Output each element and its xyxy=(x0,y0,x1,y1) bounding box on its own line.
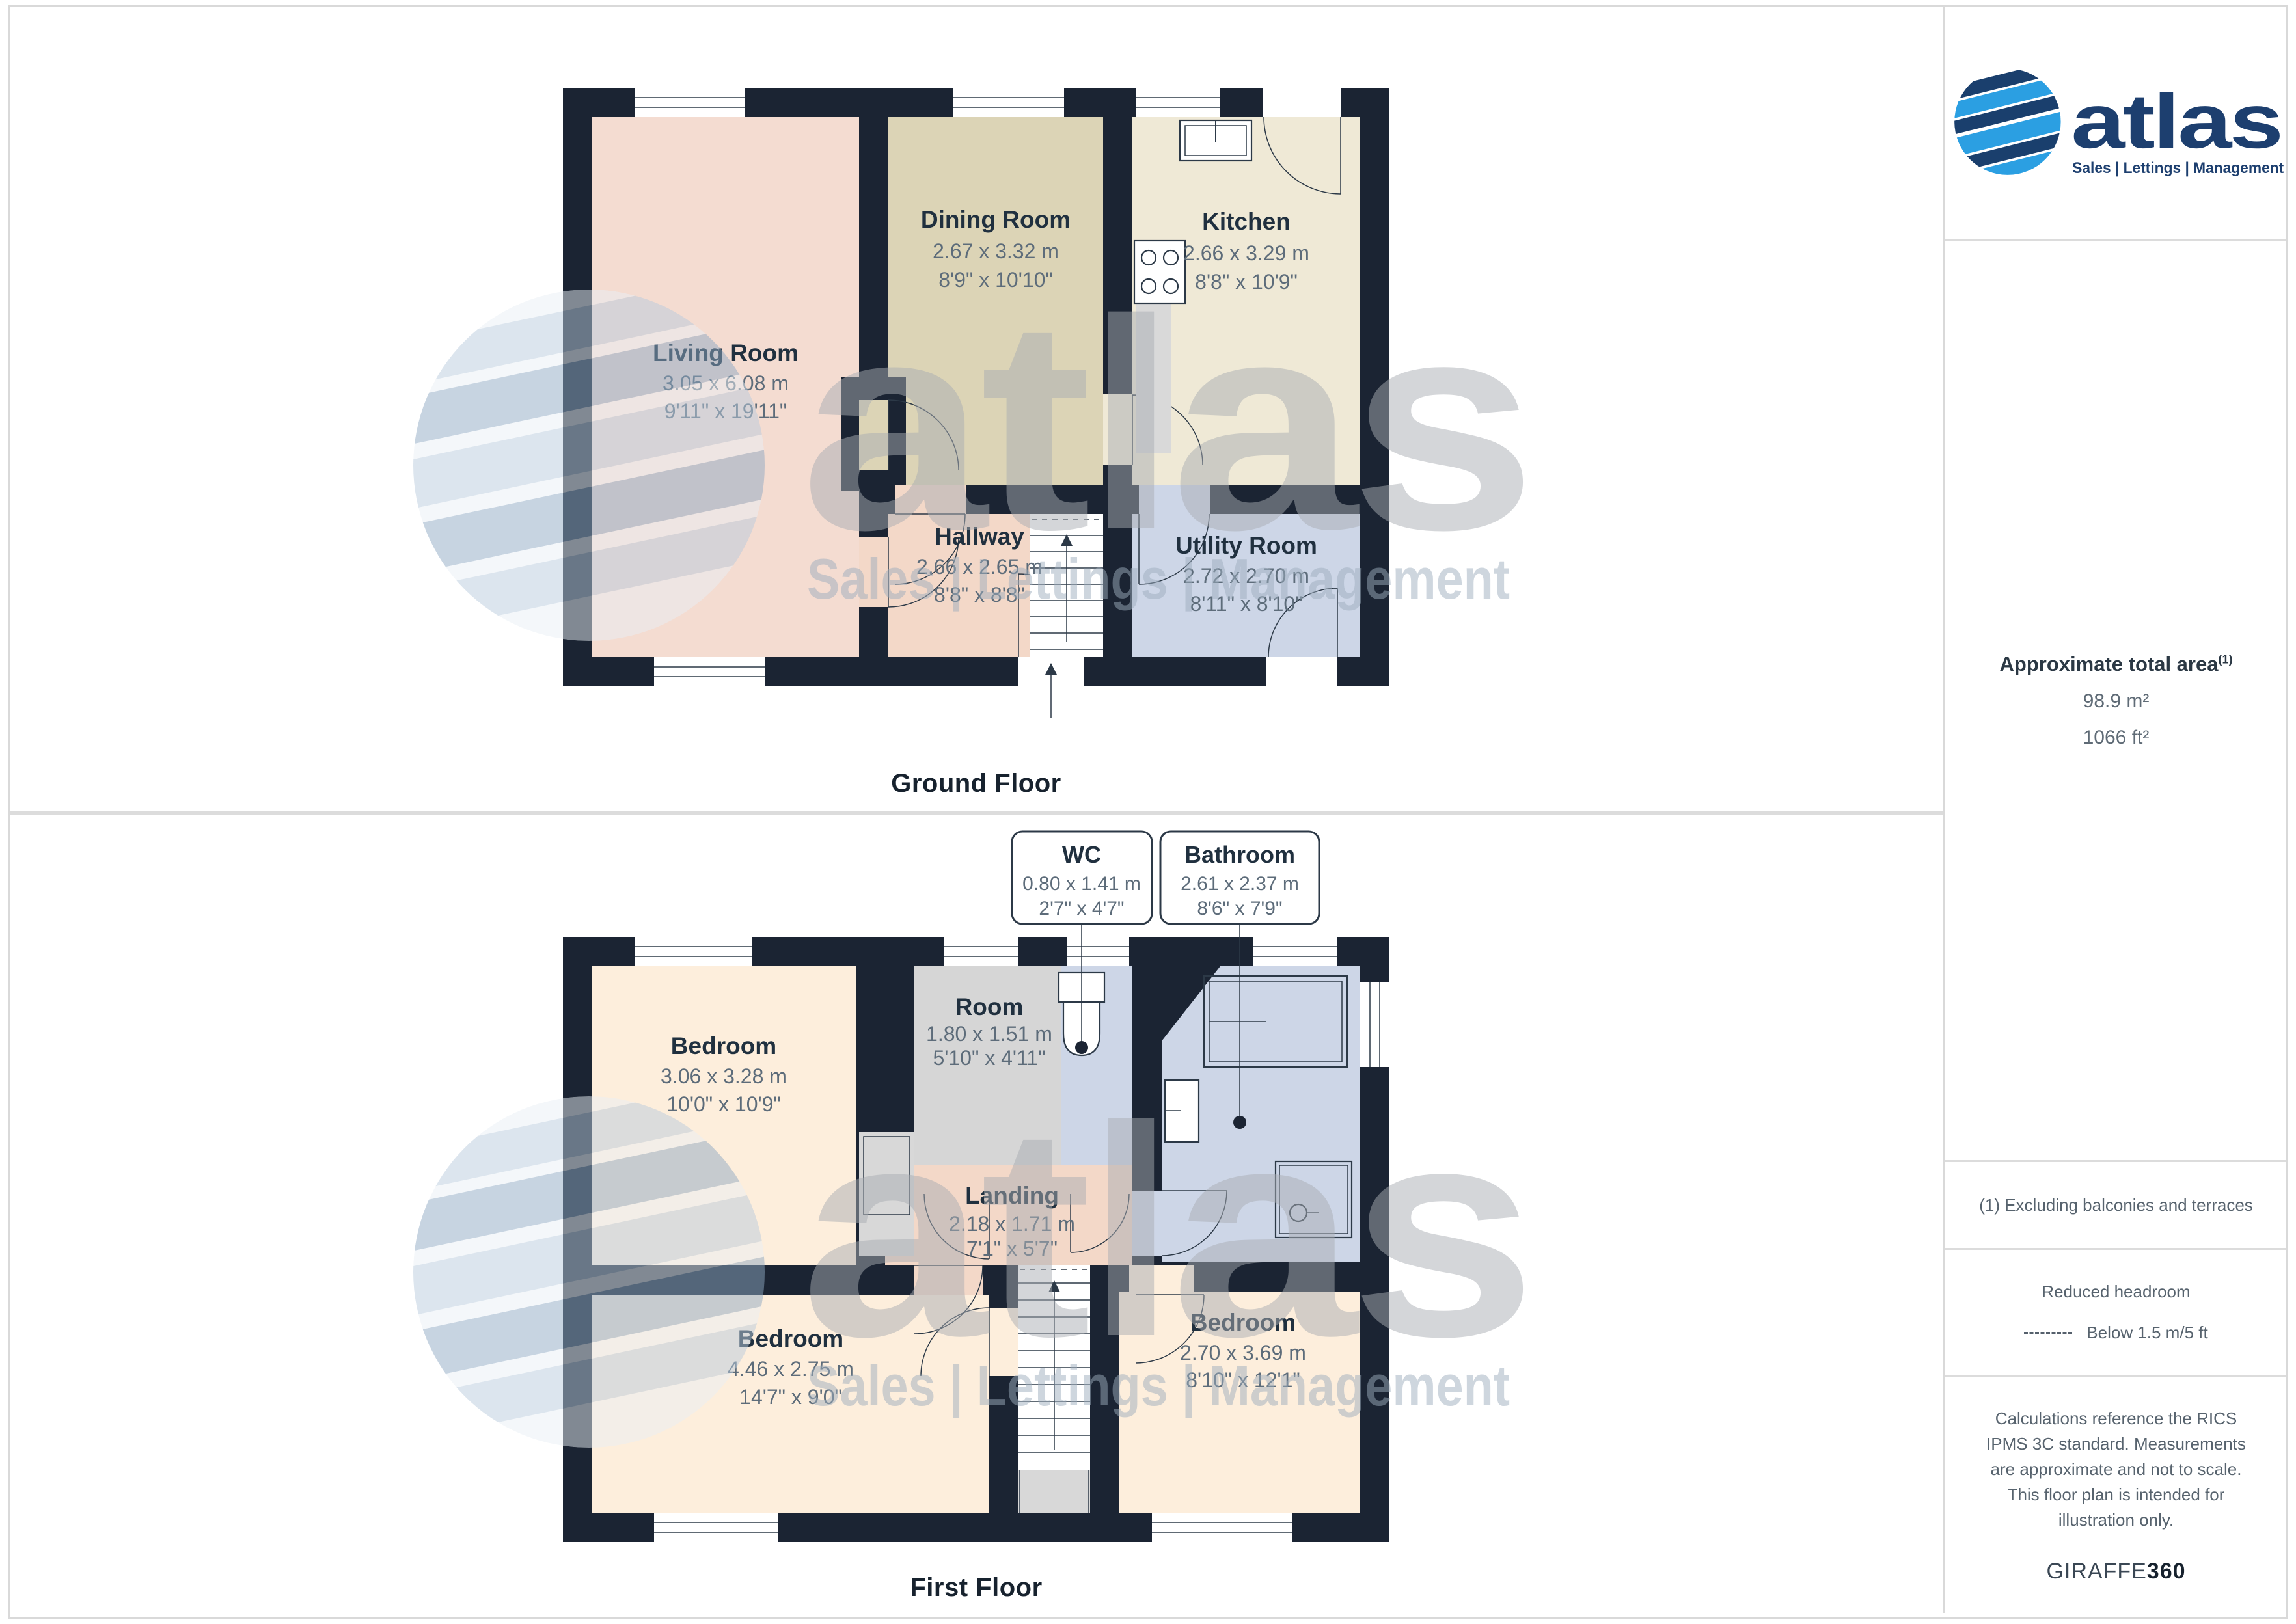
footnote-text: (1) Excluding balconies and terraces xyxy=(1979,1195,2253,1215)
brand-tagline-text: Sales | Lettings | Management xyxy=(2072,159,2284,177)
gf-living-dim-ft: 9'11" x 19'11" xyxy=(664,399,787,423)
gf-utility-dim-ft: 8'11" x 8'10" xyxy=(1190,592,1302,616)
ff-bathroom-dim-m: 2.61 x 2.37 m xyxy=(1181,873,1299,895)
ff-bedroom1-floor xyxy=(592,966,856,1265)
gf-kitchen-dim-m: 2.66 x 3.29 m xyxy=(1183,241,1309,265)
ff-landing-dim-m: 2.18 x 1.71 m xyxy=(949,1212,1075,1236)
ff-wc-dim-m: 0.80 x 1.41 m xyxy=(1022,873,1141,895)
area-title-text: Approximate total area xyxy=(2000,653,2219,675)
ff-bedroom1-dim-ft: 10'0" x 10'9" xyxy=(666,1092,781,1116)
ff-room-name: Room xyxy=(955,994,1024,1020)
info-sidebar: atlas Sales | Lettings | Management Appr… xyxy=(1943,7,2288,1613)
ff-closet xyxy=(859,1132,914,1256)
ff-wc-name: WC xyxy=(1062,841,1101,868)
headroom-title: Reduced headroom xyxy=(2042,1282,2190,1302)
gf-utility-dim-m: 2.72 x 2.70 m xyxy=(1183,564,1309,588)
ff-room-dim-m: 1.80 x 1.51 m xyxy=(926,1022,1052,1046)
area-metric-value: 98.9 m² xyxy=(2083,690,2150,712)
gf-hallway-dim-ft: 8'8" x 8'8" xyxy=(934,583,1025,606)
atlas-logo: atlas Sales | Lettings | Management xyxy=(1947,53,2286,193)
reduced-headroom-section: Reduced headroom Below 1.5 m/5 ft xyxy=(1945,1250,2288,1377)
ff-bedroom3-name: Bedroom xyxy=(1190,1309,1296,1336)
ground-floor-plan: Living Room 3.05 x 6.08 m 9'11" x 19'11"… xyxy=(563,88,1389,725)
giraffe-360-text: 360 xyxy=(2147,1559,2186,1584)
floor-divider xyxy=(10,811,1943,815)
ff-landing-name: Landing xyxy=(965,1182,1059,1209)
ff-bedroom3-dim-m: 2.70 x 3.69 m xyxy=(1180,1341,1306,1364)
ff-wc-dim-ft: 2'7" x 4'7" xyxy=(1039,898,1124,919)
ff-bathroom-cabinet xyxy=(1165,1080,1199,1142)
ff-bathroom-callout: Bathroom 2.61 x 2.37 m 8'6" x 7'9" xyxy=(1160,832,1319,924)
floorplan-page: Living Room 3.05 x 6.08 m 9'11" x 19'11"… xyxy=(0,0,2296,1624)
ff-bathroom-name: Bathroom xyxy=(1184,841,1295,868)
first-floor-title: First Floor xyxy=(10,1573,1943,1603)
gf-hallway-dim-m: 2.66 x 2.65 m xyxy=(916,555,1043,578)
ff-bedroom3-dim-ft: 8'10" x 12'1" xyxy=(1186,1368,1300,1392)
ff-bedroom2-name: Bedroom xyxy=(738,1325,843,1352)
gf-dining-dim-ft: 8'9" x 10'10" xyxy=(938,268,1053,291)
first-floor-plan: WC 0.80 x 1.41 m 2'7" x 4'7" Bathroom 2.… xyxy=(563,826,1389,1542)
gf-living-dim-m: 3.05 x 6.08 m xyxy=(663,372,789,395)
gf-kitchen-name: Kitchen xyxy=(1202,208,1291,235)
atlas-globe-icon xyxy=(1947,58,2091,193)
gf-kitchen-dim-ft: 8'8" x 10'9" xyxy=(1195,270,1298,293)
disclaimer-text: Calculations reference the RICS IPMS 3C … xyxy=(1982,1406,2251,1533)
area-footnote-marker: (1) xyxy=(2218,653,2232,666)
headroom-legend: Below 1.5 m/5 ft xyxy=(2024,1323,2207,1343)
brand-logo-section: atlas Sales | Lettings | Management xyxy=(1945,7,2288,241)
ff-bathroom-dim-ft: 8'6" x 7'9" xyxy=(1197,898,1282,919)
gf-living-name: Living Room xyxy=(653,340,799,366)
headroom-legend-text: Below 1.5 m/5 ft xyxy=(2086,1323,2207,1343)
disclaimer-section: Calculations reference the RICS IPMS 3C … xyxy=(1945,1377,2288,1613)
ff-bedroom2-dim-ft: 14'7" x 9'0" xyxy=(739,1385,842,1409)
total-area-section: Approximate total area(1) 98.9 m² 1066 f… xyxy=(1945,241,2288,1162)
ff-bedroom2-dim-m: 4.46 x 2.75 m xyxy=(728,1357,854,1381)
ff-landing-dim-ft: 7'1" x 5'7" xyxy=(966,1237,1058,1260)
gf-utility-name: Utility Room xyxy=(1175,532,1317,559)
ground-floor-title: Ground Floor xyxy=(10,769,1943,798)
ff-room-dim-ft: 5'10" x 4'11" xyxy=(933,1046,1045,1070)
gf-stairs xyxy=(1030,514,1103,657)
brand-name-text: atlas xyxy=(2071,78,2281,165)
footnote-section: (1) Excluding balconies and terraces xyxy=(1945,1162,2288,1250)
gf-dining-room-floor xyxy=(888,117,1103,485)
gf-dining-name: Dining Room xyxy=(921,206,1071,233)
ff-wc-callout: WC 0.80 x 1.41 m 2'7" x 4'7" xyxy=(1012,832,1152,924)
gf-dining-dim-m: 2.67 x 3.32 m xyxy=(933,239,1059,263)
giraffe360-brand: GIRAFFE360 xyxy=(2046,1559,2185,1584)
gf-hallway-name: Hallway xyxy=(935,523,1024,550)
gf-kitchen-sink xyxy=(1180,120,1251,161)
giraffe-text: GIRAFFE xyxy=(2046,1559,2146,1584)
ff-bedroom1-name: Bedroom xyxy=(671,1033,776,1059)
dashed-line-icon xyxy=(2024,1332,2072,1334)
area-imperial-value: 1066 ft² xyxy=(2083,727,2150,749)
ff-bedroom1-dim-m: 3.06 x 3.28 m xyxy=(661,1064,787,1088)
area-title: Approximate total area(1) xyxy=(2000,653,2233,676)
ff-stairs xyxy=(1018,1265,1090,1513)
